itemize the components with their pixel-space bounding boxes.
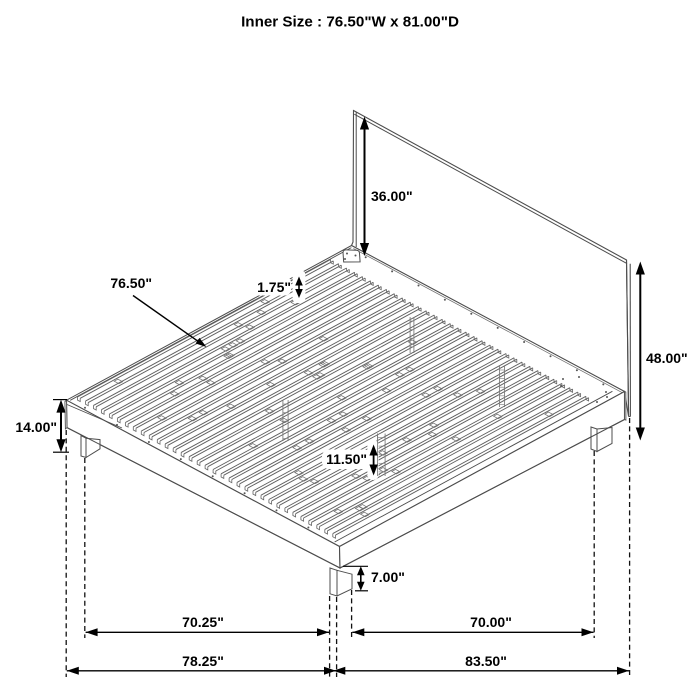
svg-text:70.00": 70.00"	[470, 614, 512, 630]
svg-text:48.00": 48.00"	[646, 350, 688, 366]
svg-text:7.00": 7.00"	[371, 569, 405, 585]
svg-text:1.75": 1.75"	[257, 279, 291, 295]
svg-text:36.00": 36.00"	[371, 188, 413, 204]
svg-text:83.50": 83.50"	[465, 653, 507, 669]
svg-text:76.50": 76.50"	[110, 275, 152, 291]
svg-text:Inner Size : 76.50"W x 81.00"D: Inner Size : 76.50"W x 81.00"D	[241, 14, 459, 31]
svg-text:14.00": 14.00"	[15, 419, 57, 435]
svg-text:70.25": 70.25"	[182, 614, 224, 630]
svg-text:11.50": 11.50"	[326, 451, 367, 467]
svg-text:78.25": 78.25"	[182, 653, 224, 669]
